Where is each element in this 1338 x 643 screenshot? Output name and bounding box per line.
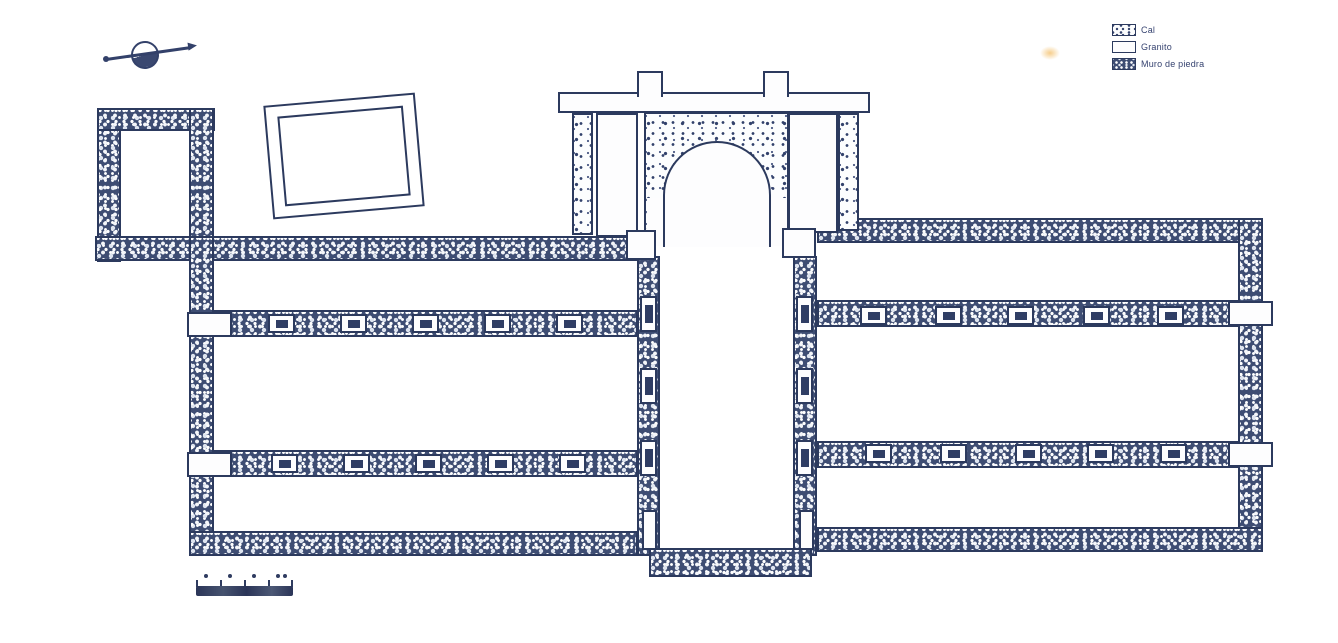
column-base-core [943,312,955,320]
column-base [1160,444,1187,463]
legend-label: Granito [1141,42,1172,52]
column-base [860,306,887,325]
hall-wall-slot [799,510,814,550]
granite-quoin [187,312,232,337]
column-base-core [1095,450,1107,458]
granite-enclosure-outer [263,93,424,220]
column-base-core [567,460,579,468]
column-base-core [873,450,885,458]
hall-wall-block [640,440,657,476]
column-base-core [1165,312,1177,320]
column-base-core [1015,312,1027,320]
scale-bar-rule [196,586,293,596]
column-base-core [276,320,288,328]
legend-label: Muro de piedra [1141,59,1204,69]
column-base [271,454,298,473]
column-base [484,314,511,333]
column-base-core [495,460,507,468]
granite-quoin [1228,442,1273,467]
granite-enclosure-inner [277,106,410,207]
column-base [1157,306,1184,325]
scale-bar-dot [204,574,208,578]
portico-granite-column-left [596,113,638,237]
scale-bar-dot [276,574,280,578]
left-wing-bottom-wall [189,531,638,556]
column-base [340,314,367,333]
hall-wall-block-core [801,449,809,467]
column-base [556,314,583,333]
column-base [940,444,967,463]
column-base-core [348,320,360,328]
left-wing-top-wall [95,236,640,261]
hall-wall-block-core [645,377,653,395]
column-base-core [1091,312,1103,320]
legend: Cal Granito Muro de piedra [1112,22,1204,73]
column-base-core [279,460,291,468]
column-base-core [420,320,432,328]
column-base [268,314,295,333]
column-base [1007,306,1034,325]
hall-bottom-wall [649,548,812,577]
legend-row-cal: Cal [1112,22,1204,37]
column-base-core [564,320,576,328]
portico-cal-column-left [572,113,593,235]
hall-wall-block [796,296,813,332]
hall-wall-block-core [645,305,653,323]
hall-wall-block [796,368,813,404]
hall-wall-block-core [801,305,809,323]
hall-wall-block [640,368,657,404]
column-base [412,314,439,333]
column-base-core [492,320,504,328]
right-wing-bottom-wall [817,527,1263,552]
column-base [865,444,892,463]
column-base [559,454,586,473]
portico-top-tab-right [763,71,789,97]
column-base [487,454,514,473]
legend-row-stone: Muro de piedra [1112,56,1204,71]
hall-wall-block [640,296,657,332]
arch-opening [663,141,771,247]
column-base-core [1023,450,1035,458]
granite-quoin [1228,301,1273,326]
portico-cal-column-right [838,113,859,231]
column-base-core [948,450,960,458]
junction-block-left [626,230,656,260]
granite-quoin [187,452,232,477]
column-base [1083,306,1110,325]
granito-swatch-icon [1112,41,1136,53]
hall-wall-slot [642,510,657,550]
column-base-core [868,312,880,320]
junction-block-right [782,228,816,258]
legend-row-granito: Granito [1112,39,1204,54]
hall-wall-block-core [801,377,809,395]
portico-granite-column-right [788,113,838,233]
scan-speck [1040,46,1060,60]
column-base [1015,444,1042,463]
portico-lintel-bar [558,92,870,113]
cal-swatch-icon [1112,24,1136,36]
column-base-core [423,460,435,468]
right-wing-top-wall [817,218,1262,243]
column-base-core [1168,450,1180,458]
north-arrow [100,34,200,74]
portico-top-tab-left [637,71,663,97]
stone-swatch-icon [1112,58,1136,70]
right-wing-right-wall [1238,218,1263,550]
north-arrow-tail [103,56,109,62]
scale-bar [192,570,312,604]
north-arrow-head [187,41,197,50]
left-wing-left-wall [189,236,214,556]
hall-wall-block-core [645,449,653,467]
scale-bar-dot [283,574,287,578]
scale-bar-dot [228,574,232,578]
column-base-core [351,460,363,468]
column-base [935,306,962,325]
column-base [1087,444,1114,463]
hall-wall-block [796,440,813,476]
scale-bar-dot [252,574,256,578]
column-base [415,454,442,473]
column-base [343,454,370,473]
legend-label: Cal [1141,25,1155,35]
floor-plan-canvas: Cal Granito Muro de piedra [0,0,1338,643]
